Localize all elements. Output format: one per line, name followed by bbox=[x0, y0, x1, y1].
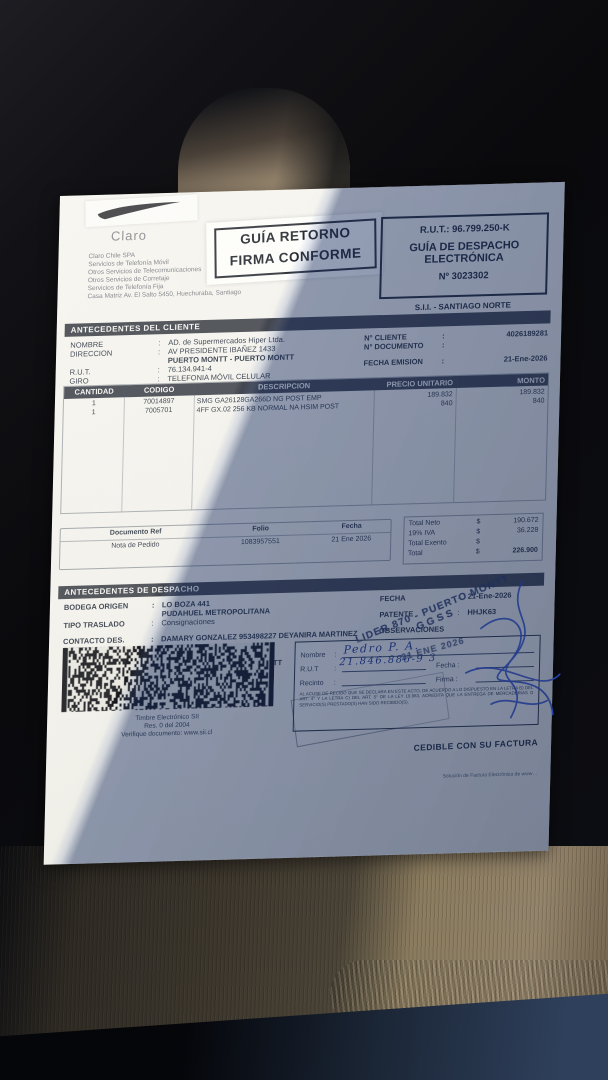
totals-box: Total Neto$190.672 19% IVA$36.228 Total … bbox=[403, 513, 544, 565]
meta-value bbox=[452, 337, 548, 349]
colon: : bbox=[151, 634, 161, 643]
colon: : bbox=[157, 374, 167, 383]
item-amount: 840 bbox=[455, 396, 547, 408]
client-meta: N° CLIENTE:4026189281 N° DOCUMENTO: FECH… bbox=[363, 328, 548, 367]
reference-box: Documento Ref Folio Fecha Nota de Pedido… bbox=[59, 519, 392, 570]
ref-header: Fecha bbox=[310, 520, 392, 534]
sii-barcode bbox=[61, 642, 274, 712]
receipt-recinto-label: Recinto bbox=[300, 680, 334, 688]
pdf417-barcode-image bbox=[61, 642, 274, 712]
currency-symbol: $ bbox=[476, 517, 486, 527]
ref-fecha: 21 Ene 2026 bbox=[310, 533, 392, 547]
document-number: Nº 3023302 bbox=[382, 268, 546, 284]
item-code: 7005701 bbox=[124, 406, 194, 417]
client-fields: NOMBRE:AD. de Supermercados Hiper Ltda. … bbox=[69, 333, 350, 386]
receipt-rut-label: R.U.T bbox=[300, 666, 334, 674]
colon: : bbox=[334, 679, 342, 686]
dispatch-document: Claro Claro Chile SPA Servicios de Telef… bbox=[44, 182, 565, 865]
colon: : bbox=[151, 618, 161, 627]
meta-value: 21-Ene-2026 bbox=[451, 353, 547, 365]
meta-label: FECHA EMISION bbox=[363, 356, 441, 367]
rut-box: R.U.T.: 96.799.250-K GUÍA DE DESPACHO EL… bbox=[379, 212, 549, 299]
items-table: CANTIDAD CODIGO DESCRIPCION PRECIO UNITA… bbox=[60, 372, 549, 514]
colon: : bbox=[442, 331, 452, 340]
total-label: Total bbox=[408, 548, 476, 560]
item-qty: 1 bbox=[64, 408, 124, 419]
item-unit-price: 840 bbox=[373, 399, 455, 410]
pen-signature bbox=[450, 574, 564, 733]
colon: : bbox=[158, 347, 168, 356]
claro-swoosh-icon bbox=[93, 197, 185, 223]
logo-sticker bbox=[85, 194, 197, 227]
receipt-name-label: Nombre bbox=[300, 652, 334, 660]
return-sticker: GUÍA RETORNO FIRMA CONFORME bbox=[206, 212, 383, 285]
currency-symbol: $ bbox=[476, 537, 486, 547]
issuer-rut: R.U.T.: 96.799.250-K bbox=[383, 221, 547, 237]
colon: : bbox=[441, 356, 451, 365]
photo-scene: Claro Claro Chile SPA Servicios de Telef… bbox=[0, 0, 608, 1080]
currency-symbol: $ bbox=[476, 527, 486, 537]
ref-folio: 1083957551 bbox=[210, 535, 310, 550]
return-stamp: GUÍA RETORNO FIRMA CONFORME bbox=[214, 218, 376, 278]
footer-provider-note: Solución de Factura Electrónica de www… bbox=[337, 771, 537, 783]
sii-timbre-footer: Timbre Electrónico SII Res. 0 del 2004 V… bbox=[61, 711, 274, 741]
colon: : bbox=[442, 340, 452, 349]
colon: : bbox=[152, 600, 162, 609]
currency-symbol: $ bbox=[476, 547, 486, 557]
recinto-fill-line bbox=[342, 683, 426, 686]
cedible-stamp: CEDIBLE CON SU FACTURA bbox=[346, 737, 538, 756]
meta-label: N° DOCUMENTO bbox=[364, 340, 442, 351]
colon: : bbox=[158, 365, 168, 374]
total-value: 226.900 bbox=[486, 546, 538, 557]
brand-name: Claro bbox=[111, 228, 147, 244]
colon: : bbox=[158, 338, 168, 347]
